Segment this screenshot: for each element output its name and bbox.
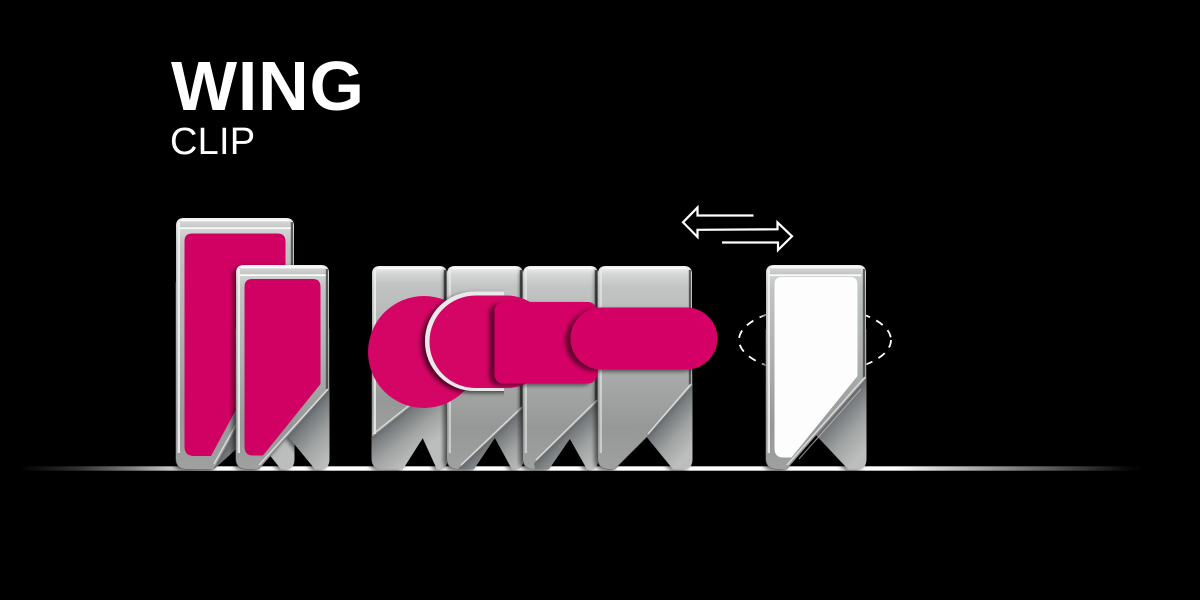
svg-text:CLIP: CLIP [170,121,255,163]
svg-text:WING: WING [171,47,365,125]
